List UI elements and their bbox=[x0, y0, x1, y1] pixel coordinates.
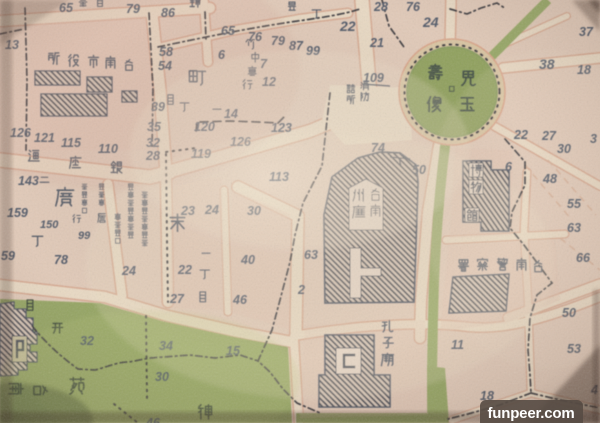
svg-text:funpeer.com: funpeer.com bbox=[488, 405, 575, 422]
